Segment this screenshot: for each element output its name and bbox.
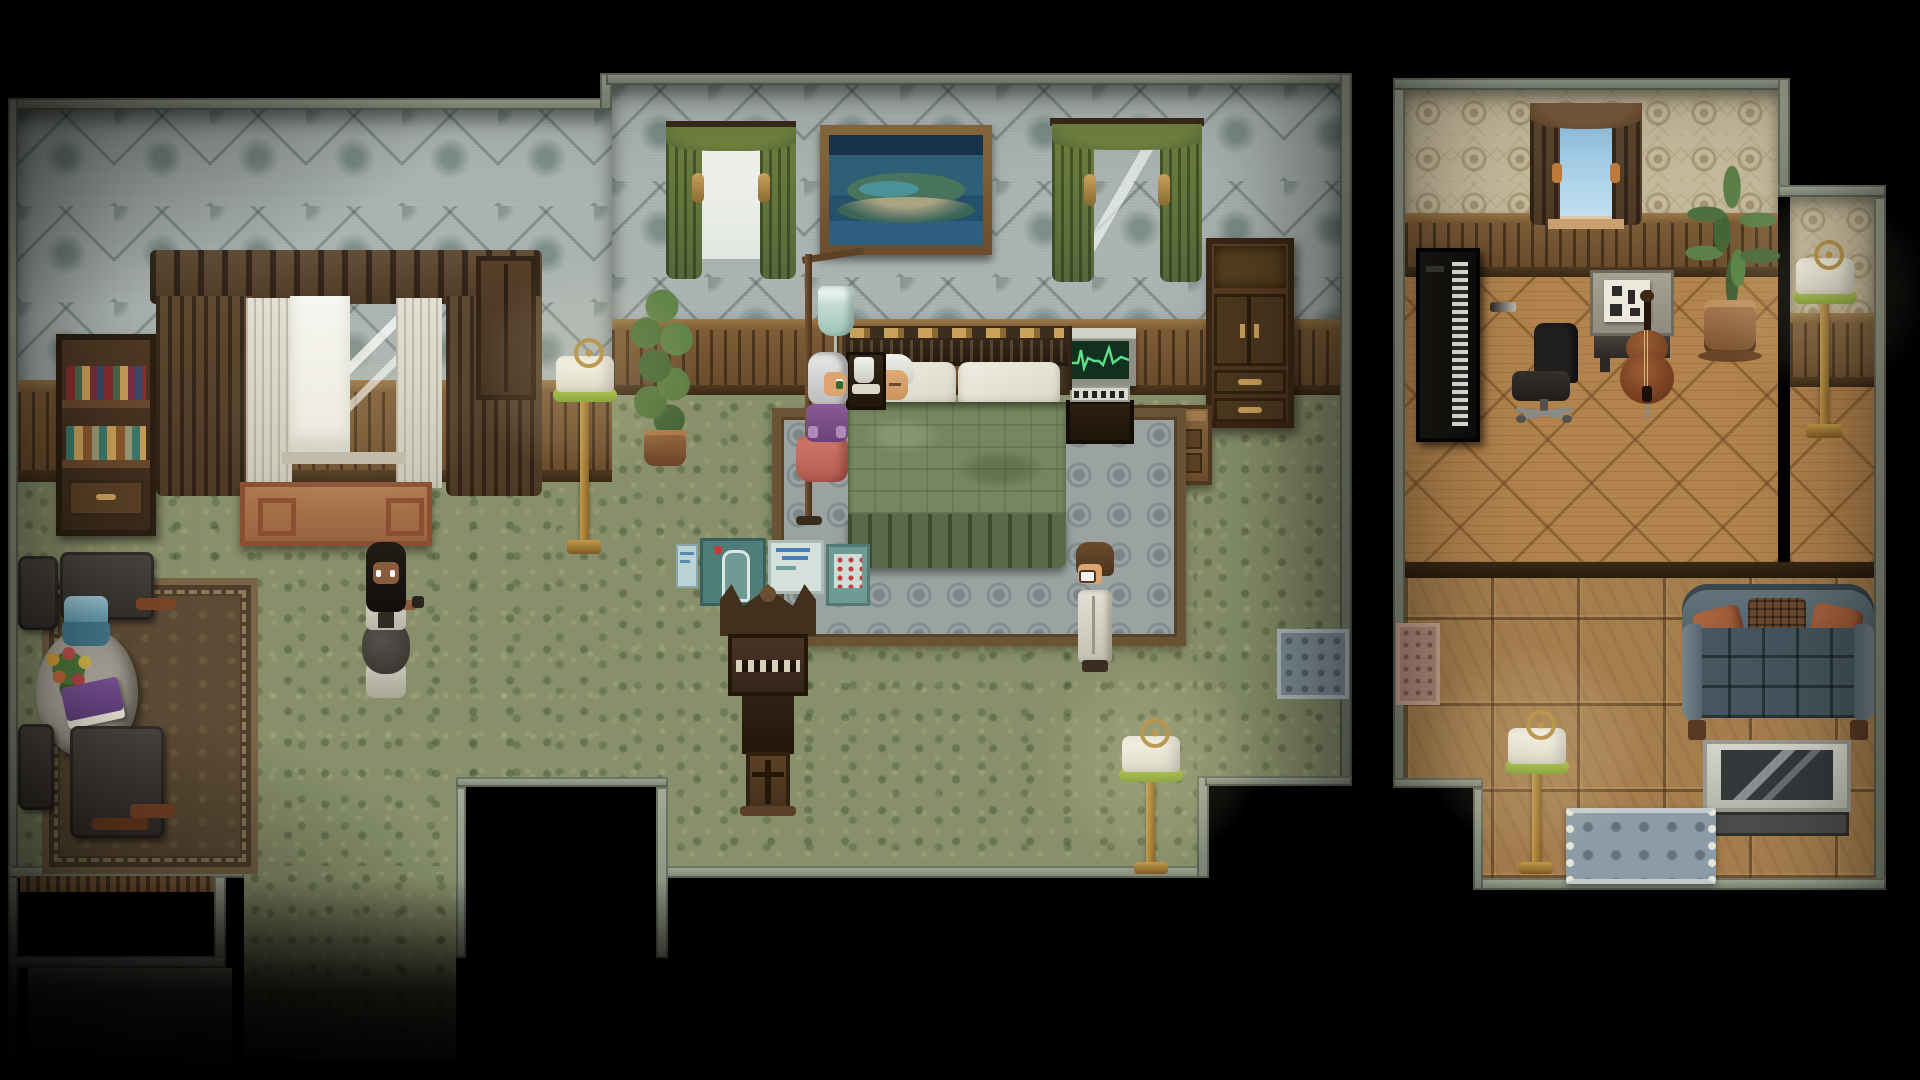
media-rack[interactable]	[1416, 248, 1480, 442]
screen-panel	[676, 544, 698, 588]
window-study	[1530, 101, 1642, 231]
window-sill	[282, 452, 406, 464]
lamp-base	[1519, 862, 1553, 874]
wardrobe-door-line	[504, 264, 508, 392]
sideboard-table[interactable]	[240, 482, 432, 546]
shelf-board	[62, 400, 150, 408]
cello[interactable]	[1616, 290, 1676, 418]
stairwell-border	[656, 787, 668, 958]
cello-endpin	[1646, 404, 1649, 418]
room-border	[1197, 776, 1209, 878]
window-pane-bright	[290, 296, 350, 464]
eye	[376, 570, 381, 577]
room-border	[1778, 185, 1886, 197]
ekg-monitor[interactable]	[1064, 328, 1136, 386]
room-border	[1393, 78, 1405, 890]
caretaker-face	[373, 562, 399, 584]
painting-lagoon	[859, 181, 919, 197]
red-marker	[714, 546, 722, 554]
tassel	[1084, 174, 1096, 206]
room-border	[1874, 197, 1886, 890]
book-row	[66, 366, 146, 400]
window-sill	[1548, 219, 1624, 229]
door-emblem	[100, 1006, 126, 1040]
ekg-trace	[1071, 341, 1129, 379]
lamp-pole	[580, 400, 589, 546]
ekg-stand	[1066, 400, 1134, 444]
couch-foot	[1688, 720, 1706, 740]
chair-leg	[130, 804, 174, 818]
room-master-bedroom	[0, 0, 1356, 1080]
floor-lamp[interactable]	[1502, 710, 1572, 876]
floor-carpet-left-lower	[244, 866, 456, 1060]
plant-pot	[644, 430, 686, 466]
fringed-rug	[1566, 808, 1716, 884]
shelf-board	[62, 460, 150, 468]
curtain-swag	[1052, 124, 1202, 150]
room-border	[8, 98, 18, 1062]
bookshelf[interactable]	[56, 334, 156, 536]
armoire-drawer	[1214, 370, 1286, 394]
painting-island[interactable]	[820, 125, 992, 255]
iv-bag	[818, 286, 854, 336]
dining-chair[interactable]	[18, 556, 58, 630]
tv-screen	[1721, 750, 1833, 800]
cd-column	[1452, 262, 1468, 426]
chair-seat	[1512, 371, 1570, 401]
table-corner-inlay	[258, 498, 296, 536]
floor-lamp[interactable]	[1116, 718, 1186, 876]
room-border	[1473, 788, 1483, 890]
character-elderly-woman[interactable]	[794, 352, 856, 486]
office-chair[interactable]	[1508, 323, 1582, 427]
bed-skirt	[848, 514, 1066, 568]
drape-left	[156, 296, 252, 496]
window-pane-sky	[350, 296, 400, 464]
iv-base	[796, 516, 822, 525]
doctor-coat	[1078, 590, 1112, 662]
lamp-pole	[1146, 780, 1155, 868]
painting-canvas	[829, 135, 983, 245]
cello-tailpiece	[1642, 386, 1652, 402]
chair-stool	[746, 752, 790, 810]
staircase-down[interactable]	[20, 892, 214, 956]
eye	[390, 570, 395, 577]
stairwell-border	[456, 777, 668, 787]
plant-leaves	[1682, 160, 1782, 310]
plant-saucer	[1698, 350, 1762, 362]
stairwell-opening[interactable]	[466, 787, 656, 1080]
armoire[interactable]	[1206, 238, 1294, 428]
lamp-finial	[574, 338, 604, 368]
chair-leg	[92, 818, 148, 830]
study-floor-divider	[1405, 562, 1874, 578]
game-viewport	[0, 0, 1920, 1080]
woman-blouse	[806, 404, 848, 442]
caretaker-held-item	[412, 596, 424, 608]
armoire-drawer	[1214, 398, 1286, 422]
room-border	[8, 956, 226, 968]
tieback	[1610, 163, 1620, 183]
plant-pot	[1704, 300, 1756, 356]
television[interactable]	[1703, 740, 1851, 836]
couch-foot	[1850, 720, 1868, 740]
lamp-finial	[1140, 718, 1170, 748]
book-row	[66, 426, 146, 460]
drawer	[68, 480, 144, 516]
rack-dial	[1426, 266, 1444, 272]
remote-on-floor[interactable]	[1490, 302, 1516, 312]
room-border	[1205, 776, 1352, 786]
stairwell-border	[456, 787, 466, 958]
closed-eye	[889, 383, 901, 386]
room-study	[1356, 0, 1920, 1080]
woman-eye	[836, 379, 843, 389]
room-border	[1393, 778, 1483, 788]
window-green-sky	[1050, 118, 1204, 288]
doctor-face	[1078, 564, 1102, 584]
armoire-doors	[1214, 294, 1286, 366]
chair-finial	[760, 586, 776, 602]
room-border	[8, 98, 612, 110]
room-border	[214, 876, 226, 968]
lamp-pole	[1820, 302, 1829, 430]
plant-foliage	[626, 288, 698, 438]
curtain-swag	[1530, 103, 1642, 129]
lamp-base	[1134, 862, 1168, 874]
wardrobe[interactable]	[476, 256, 536, 400]
small-mat	[1277, 629, 1349, 699]
chair-star-base	[1516, 399, 1574, 421]
doctor-glasses	[1079, 570, 1096, 583]
door-handle	[1254, 324, 1259, 338]
doormat	[1396, 623, 1440, 705]
tassel	[1158, 174, 1170, 206]
dining-chair[interactable]	[18, 724, 54, 810]
chair-back	[728, 634, 808, 696]
window-green-bright	[666, 121, 796, 285]
doctor-shoes	[1082, 660, 1108, 672]
door-handle	[1240, 324, 1245, 338]
lamp-base	[567, 540, 601, 554]
cello-scroll	[1640, 290, 1654, 302]
chair-leg	[136, 598, 176, 610]
door-emblem	[152, 1006, 176, 1040]
tassel	[692, 173, 704, 203]
curtain-swag	[666, 127, 796, 151]
desk-leg	[1600, 356, 1610, 372]
lamp-finial	[1526, 710, 1556, 740]
painting-shore	[837, 197, 975, 223]
lamp-base	[1806, 424, 1842, 438]
floor-lamp[interactable]	[1790, 238, 1860, 444]
couch-armrest	[1854, 624, 1874, 720]
couch[interactable]	[1682, 584, 1874, 742]
woman-face	[824, 372, 846, 396]
ekg-keyboard[interactable]	[1070, 386, 1130, 402]
window-pane-sky	[1554, 115, 1618, 219]
tall-plant[interactable]	[1682, 160, 1782, 366]
character-caretaker[interactable]	[360, 542, 412, 704]
floor-lamp[interactable]	[550, 336, 620, 558]
armoire-top-shelf	[1214, 246, 1286, 288]
study-stair-notch[interactable]	[1393, 788, 1473, 890]
tv-stand	[1705, 812, 1849, 836]
blanket	[848, 402, 1066, 514]
table-corner-inlay	[386, 498, 424, 536]
screen-panel-dotchart	[826, 544, 870, 606]
couch-seat	[1694, 628, 1862, 718]
ekg-screen	[1071, 341, 1129, 379]
dining-chair[interactable]	[70, 726, 164, 838]
room-border	[606, 73, 1352, 85]
chair-checker-band	[736, 660, 800, 672]
lamp-pole	[1532, 772, 1541, 868]
chair-feet	[740, 806, 796, 816]
couch-armrest	[1682, 624, 1702, 720]
character-doctor[interactable]	[1074, 542, 1118, 680]
chair-seatpost	[742, 696, 794, 754]
potted-plant[interactable]	[620, 288, 704, 472]
woman-skirt	[796, 436, 848, 482]
room-border	[1393, 78, 1790, 90]
tieback	[1552, 163, 1562, 183]
door-emblem	[124, 998, 154, 1046]
lamp-finial	[1814, 240, 1844, 270]
tassel	[758, 173, 770, 203]
ekg-station[interactable]	[1060, 324, 1140, 446]
highback-chair[interactable]	[718, 584, 818, 820]
staircase-top-step[interactable]	[20, 876, 214, 892]
door-panel[interactable]	[28, 968, 232, 1080]
floor-carpet-right	[1197, 395, 1340, 776]
